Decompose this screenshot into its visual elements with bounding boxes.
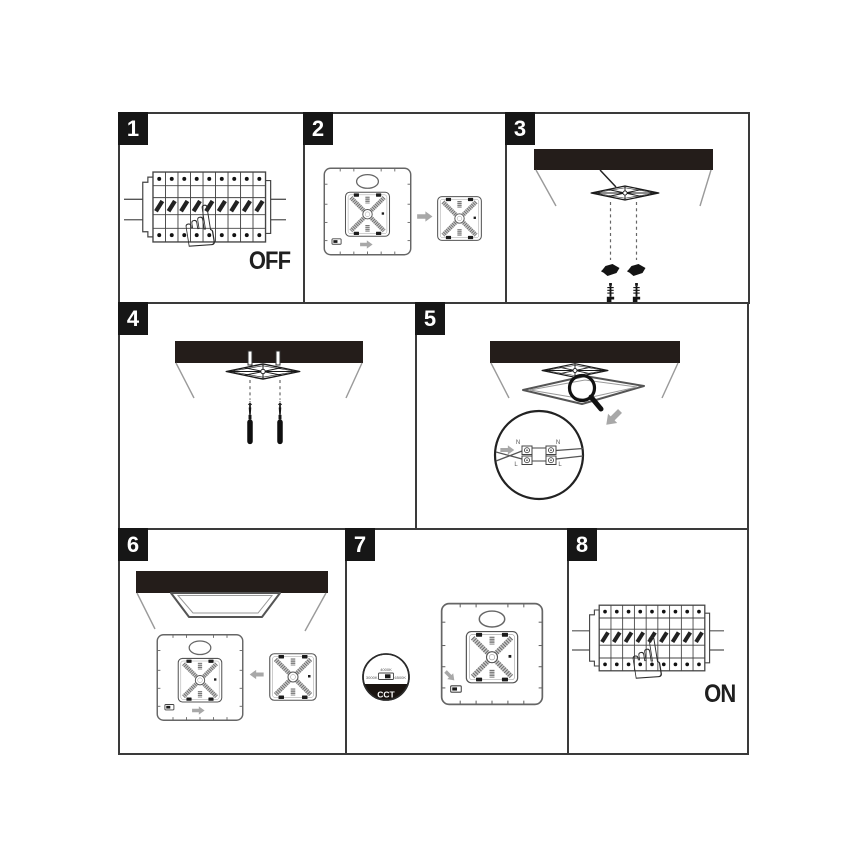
ceiling-bar xyxy=(136,571,328,593)
wall-anchor-icon xyxy=(602,264,620,276)
step-number-badge: 4 xyxy=(118,302,148,335)
panel-back-illustration xyxy=(442,604,543,705)
wiring-detail-circle: N N L L xyxy=(495,411,583,499)
mounting-bracket-illustration xyxy=(438,197,482,241)
off-label: OFF xyxy=(249,247,290,276)
step-number-badge: 2 xyxy=(303,112,333,145)
cct-detail-circle: 4000K 3000K 6500K CCT xyxy=(363,654,409,700)
step-panel-2: 2 xyxy=(303,112,507,304)
label-n-left: N xyxy=(516,440,520,446)
step-number-badge: 8 xyxy=(567,528,597,561)
wiring-illustration: N N L L xyxy=(417,304,747,528)
step-panel-7: 4000K 3000K 6500K CCT 7 xyxy=(345,528,569,755)
cct-6500k-label: 6500K xyxy=(395,675,407,680)
wall-anchor-icon xyxy=(628,264,646,276)
step-number-badge: 6 xyxy=(118,528,148,561)
step-number-badge: 3 xyxy=(505,112,535,145)
step-panel-8: ☝ ON 8 xyxy=(567,528,749,755)
cct-3000k-label: 3000K xyxy=(366,675,378,680)
ceiling-mounting-illustration xyxy=(507,114,748,302)
panel-attach-illustration xyxy=(120,530,345,753)
mounting-bracket-perspective xyxy=(591,186,659,200)
cct-label: CCT xyxy=(377,690,395,700)
step-number-badge: 5 xyxy=(415,302,445,335)
screwdriver-icon xyxy=(277,398,283,444)
cct-switch-illustration: 4000K 3000K 6500K CCT xyxy=(347,530,567,753)
step-panel-4: 4 xyxy=(118,302,417,530)
on-label: ON xyxy=(704,680,735,709)
step-panel-1: ☝ OFF 1 xyxy=(118,112,305,304)
cct-4000k-label: 4000K xyxy=(380,667,392,672)
zoom-arrow-icon xyxy=(602,406,625,429)
step-number-badge: 1 xyxy=(118,112,148,145)
bracket-screwing-illustration xyxy=(120,304,415,528)
mounting-bracket-perspective xyxy=(226,364,299,379)
screw-icon xyxy=(607,283,614,302)
label-n-right: N xyxy=(556,440,560,446)
ceiling-bar xyxy=(534,149,713,170)
attach-arrow-icon xyxy=(250,670,264,679)
ceiling-bar xyxy=(490,341,680,363)
mounting-bracket-illustration xyxy=(270,654,317,701)
step-panel-6: 6 xyxy=(118,528,347,755)
screwdriver-icon xyxy=(247,398,253,444)
step-panel-3: 3 xyxy=(505,112,750,304)
step-number-badge: 7 xyxy=(345,528,375,561)
ceiling-bar xyxy=(175,341,363,363)
panel-back-detach-illustration xyxy=(305,114,505,302)
step-panel-5: N N L L 5 xyxy=(415,302,749,530)
mounting-bracket-perspective xyxy=(542,364,608,378)
screw-icon xyxy=(633,283,640,302)
instruction-sheet: ☝ OFF 1 2 3 xyxy=(0,0,868,868)
detach-arrow-icon xyxy=(417,211,432,221)
